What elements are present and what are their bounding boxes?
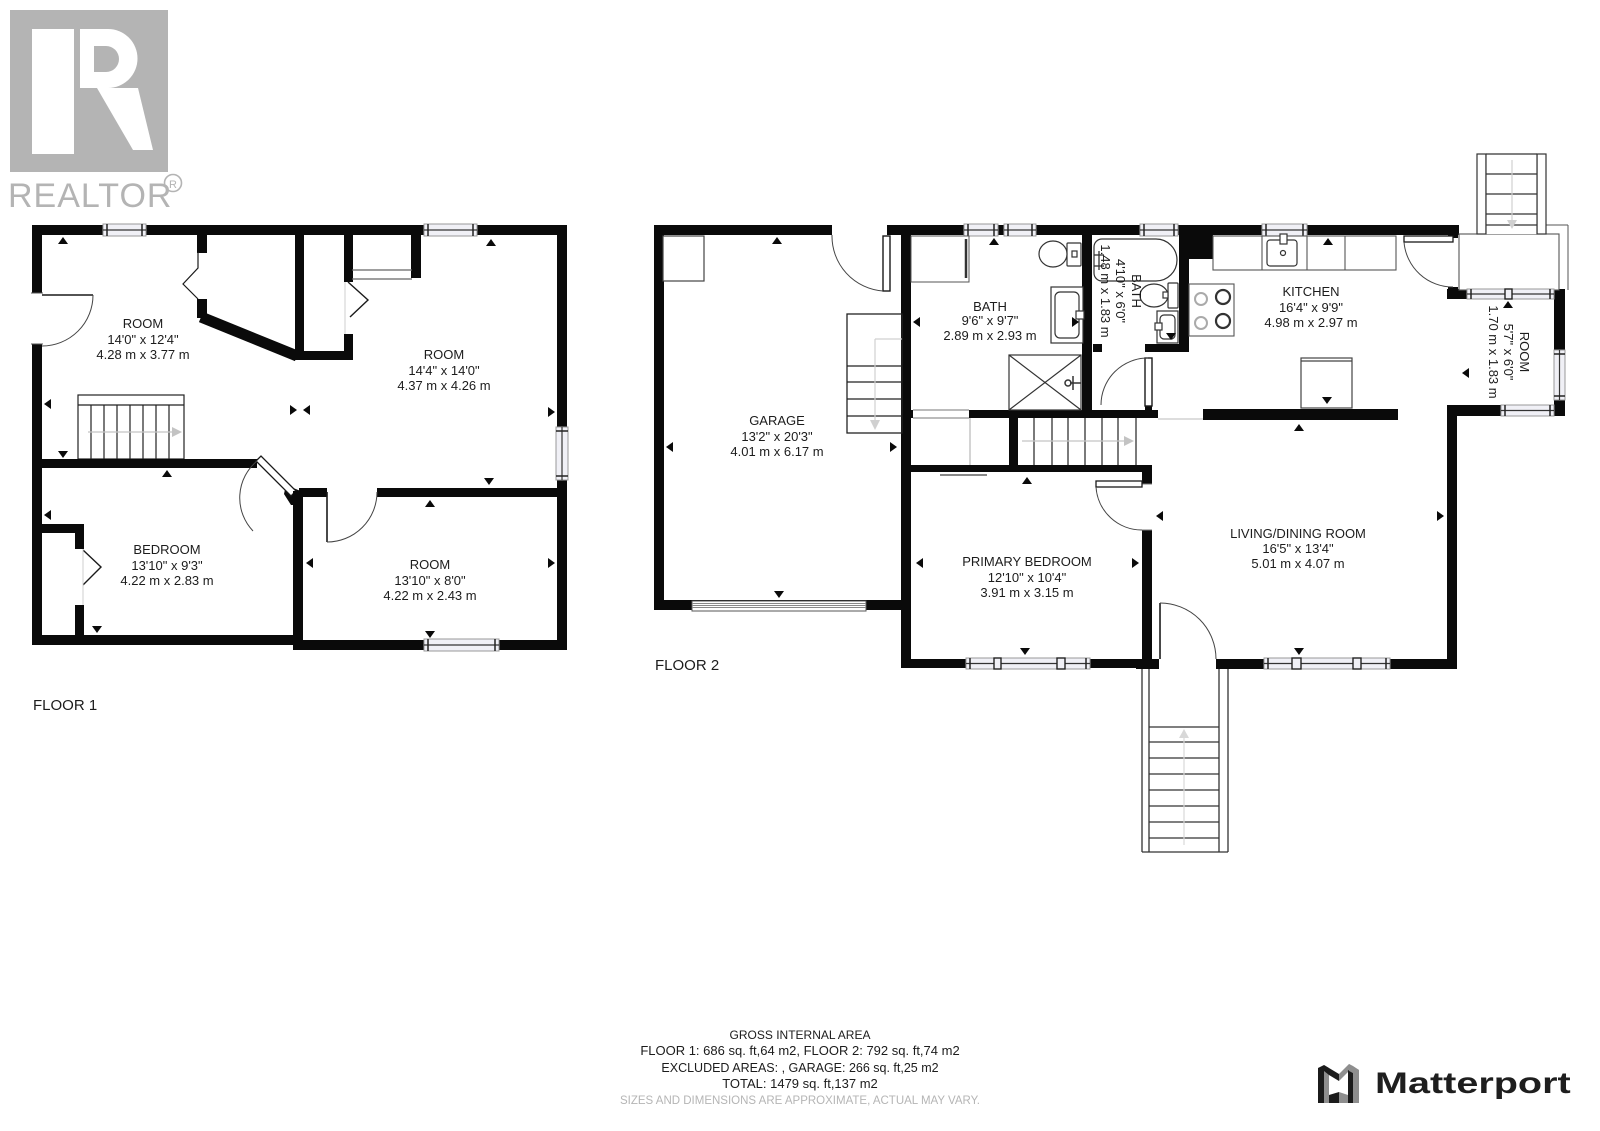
svg-text:16'4" x 9'9": 16'4" x 9'9"	[1279, 300, 1343, 315]
svg-text:TOTAL: 1479 sq. ft,137 m2: TOTAL: 1479 sq. ft,137 m2	[722, 1076, 878, 1091]
svg-text:PRIMARY BEDROOM: PRIMARY BEDROOM	[962, 554, 1092, 569]
svg-text:4.01 m x 6.17 m: 4.01 m x 6.17 m	[730, 444, 823, 459]
svg-text:SIZES AND DIMENSIONS ARE APPRO: SIZES AND DIMENSIONS ARE APPROXIMATE, AC…	[620, 1095, 980, 1107]
svg-text:13'2" x 20'3": 13'2" x 20'3"	[741, 429, 813, 444]
svg-text:ROOM: ROOM	[424, 347, 464, 362]
svg-text:Matterport: Matterport	[1375, 1067, 1571, 1100]
svg-text:FLOOR 2: FLOOR 2	[655, 657, 719, 674]
svg-text:5'7" x 6'0": 5'7" x 6'0"	[1501, 324, 1516, 381]
svg-text:4.22 m x 2.83 m: 4.22 m x 2.83 m	[120, 573, 213, 588]
svg-text:3.91 m x 3.15 m: 3.91 m x 3.15 m	[980, 585, 1073, 600]
svg-text:FLOOR 1: FLOOR 1	[33, 697, 97, 714]
svg-text:12'10" x 10'4": 12'10" x 10'4"	[988, 570, 1067, 585]
svg-text:ROOM: ROOM	[1517, 332, 1532, 372]
svg-text:REALTOR: REALTOR	[8, 177, 172, 215]
svg-text:KITCHEN: KITCHEN	[1282, 284, 1339, 299]
svg-text:EXCLUDED AREAS: , GARAGE: 266: EXCLUDED AREAS: , GARAGE: 266 sq. ft,25 …	[661, 1061, 938, 1075]
svg-text:R: R	[169, 179, 177, 191]
svg-text:4.37 m x 4.26 m: 4.37 m x 4.26 m	[397, 378, 490, 393]
svg-text:BEDROOM: BEDROOM	[133, 542, 200, 557]
svg-text:9'6" x 9'7": 9'6" x 9'7"	[962, 313, 1019, 328]
svg-text:4'10" x 6'0": 4'10" x 6'0"	[1113, 259, 1128, 323]
svg-text:2.89 m x 2.93 m: 2.89 m x 2.93 m	[943, 328, 1036, 343]
svg-text:14'4" x 14'0": 14'4" x 14'0"	[408, 363, 480, 378]
svg-text:1.48 m x 1.83 m: 1.48 m x 1.83 m	[1098, 244, 1113, 337]
svg-text:4.22 m x 2.43 m: 4.22 m x 2.43 m	[383, 588, 476, 603]
svg-text:4.98 m x 2.97 m: 4.98 m x 2.97 m	[1264, 315, 1357, 330]
svg-text:GARAGE: GARAGE	[749, 413, 805, 428]
svg-text:FLOOR 1: 686 sq. ft,64 m2, FLO: FLOOR 1: 686 sq. ft,64 m2, FLOOR 2: 792 …	[640, 1043, 959, 1058]
svg-text:ROOM: ROOM	[123, 316, 163, 331]
svg-text:BATH: BATH	[973, 299, 1007, 314]
svg-text:4.28 m x 3.77 m: 4.28 m x 3.77 m	[96, 347, 189, 362]
svg-text:GROSS INTERNAL AREA: GROSS INTERNAL AREA	[730, 1028, 871, 1042]
svg-text:16'5" x 13'4": 16'5" x 13'4"	[1262, 541, 1334, 556]
svg-text:5.01 m x 4.07 m: 5.01 m x 4.07 m	[1251, 556, 1344, 571]
svg-text:14'0" x 12'4": 14'0" x 12'4"	[107, 332, 179, 347]
svg-text:LIVING/DINING ROOM: LIVING/DINING ROOM	[1230, 526, 1366, 541]
svg-text:ROOM: ROOM	[410, 557, 450, 572]
svg-text:1.70 m x 1.83 m: 1.70 m x 1.83 m	[1486, 305, 1501, 398]
svg-text:13'10" x 9'3": 13'10" x 9'3"	[131, 558, 203, 573]
svg-text:13'10" x 8'0": 13'10" x 8'0"	[394, 573, 466, 588]
svg-text:BATH: BATH	[1129, 274, 1144, 308]
